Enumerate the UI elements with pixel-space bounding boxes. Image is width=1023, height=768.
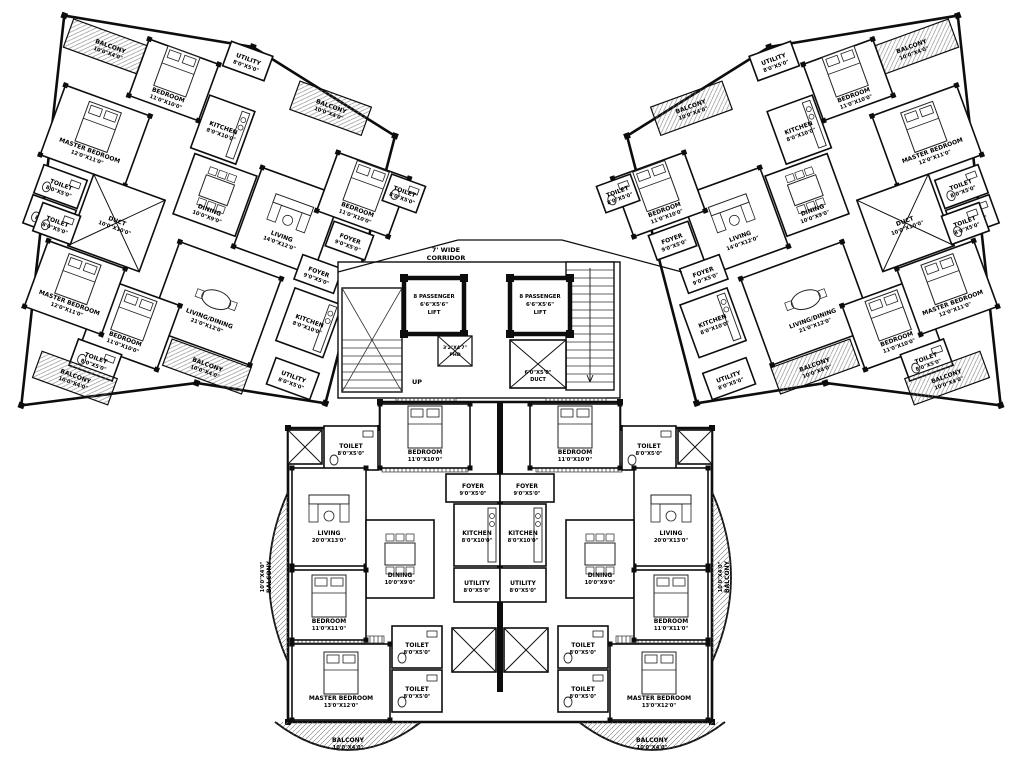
room-label: 8'0"X5'0" xyxy=(337,451,364,457)
room-label: UTILITY xyxy=(464,580,490,587)
room-label: 6'6"X5'6" xyxy=(526,302,554,308)
room-room xyxy=(678,430,712,464)
sofa-icon xyxy=(682,504,691,522)
room-bedroom: BEDROOM11'0"X10'0" xyxy=(528,402,623,471)
sofa-icon xyxy=(309,504,318,522)
room-kitchen: KITCHEN8'0"X10'0" xyxy=(500,504,546,566)
room-bedroom: BEDROOM11'0"X10'0" xyxy=(378,402,473,471)
column-block xyxy=(632,466,637,471)
column-block xyxy=(290,466,295,471)
column-block xyxy=(506,274,514,282)
room-label: 11'0"X11'0" xyxy=(312,626,347,632)
room-label: 10'0"X4'0" xyxy=(718,561,724,592)
room-label: 11'0"X10'0" xyxy=(558,457,593,463)
room-label: 13'0"X12'0" xyxy=(642,703,677,709)
bed-icon xyxy=(408,406,442,448)
bottom-wing: TOILET8'0"X5'0"BEDROOM11'0"X10'0"FOYER9'… xyxy=(260,399,731,751)
floor-plan-page: BALCONY10'0"X4'0"MASTER BEDROOM12'0"X11'… xyxy=(0,0,1023,768)
room-utility: UTILITY8'0"X5'0" xyxy=(454,568,500,602)
room-label: DINING xyxy=(388,572,412,579)
room-dining: DINING10'0"X9'0" xyxy=(366,520,434,598)
room-label: TOILET xyxy=(339,443,363,450)
room-label: 8'0"X5'0" xyxy=(569,694,596,700)
stair-up-label: UP xyxy=(412,378,422,386)
room-label: FOYER xyxy=(516,483,538,490)
column-block xyxy=(290,718,295,723)
sofa-icon xyxy=(340,504,349,522)
room-label: BALCONY xyxy=(266,560,273,593)
lift-shaft: 8 PASSENGER6'6"X5'6"LIFT xyxy=(400,274,468,338)
room-label: FOYER xyxy=(462,483,484,490)
room-living: LIVING20'0"X13'0" xyxy=(632,466,711,569)
room-label: 13'0"X12'0" xyxy=(324,703,359,709)
room-label: 8'0"X5'0" xyxy=(569,650,596,656)
room-balcony: BALCONY10'0"X4'0" xyxy=(718,560,731,593)
room-label: TOILET xyxy=(405,642,429,649)
room-label: 10'0"X4'0" xyxy=(260,561,266,592)
corridor-label-line1: 7' WIDE xyxy=(432,246,460,254)
room-label: 10'0"X9'0" xyxy=(385,580,416,586)
room-label: LIVING xyxy=(318,530,341,537)
room-label: 11'0"X11'0" xyxy=(654,626,689,632)
column-block xyxy=(290,568,295,573)
column-block xyxy=(706,568,711,573)
room-label: TOILET xyxy=(571,686,595,693)
room-label: MASTER BEDROOM xyxy=(309,695,373,702)
column-block xyxy=(364,466,369,471)
room-label: 6'6"X5'6" xyxy=(420,302,448,308)
room-label: 10'0"X4'0" xyxy=(637,745,668,751)
room-label: 8'0"X5'0" xyxy=(635,451,662,457)
column-block xyxy=(528,466,533,471)
room-label: LIFT xyxy=(428,310,441,316)
column-block xyxy=(364,568,369,573)
room-label: 6'0"X5'0" xyxy=(524,370,551,376)
column-block xyxy=(566,330,574,338)
room-label: 20'0"X13'0" xyxy=(312,538,347,544)
bed-icon xyxy=(642,652,676,694)
core-duct: 6'0"X5'0"DUCT xyxy=(510,340,566,388)
room-label: BEDROOM xyxy=(558,449,592,456)
room-label: 8'0"X10'0" xyxy=(508,538,539,544)
room-label: BALCONY xyxy=(332,737,365,744)
column-block xyxy=(468,402,473,407)
bed-icon xyxy=(558,406,592,448)
room-label: BALCONY xyxy=(636,737,669,744)
room-label: TOILET xyxy=(637,443,661,450)
room-label: 8'0"X5'0" xyxy=(509,588,536,594)
room-label: 3'2"X4'7" xyxy=(443,345,467,351)
column-block xyxy=(566,274,574,282)
room-label: UTILITY xyxy=(510,580,536,587)
column-block xyxy=(388,718,393,723)
column-block xyxy=(290,642,295,647)
room-label: 8'0"X5'0" xyxy=(403,650,430,656)
room-label: 9'0"X5'0" xyxy=(513,491,540,497)
floor-plan-svg: BALCONY10'0"X4'0"MASTER BEDROOM12'0"X11'… xyxy=(0,0,1023,768)
room-label: 8 PASSENGER xyxy=(413,294,455,300)
room-label: TOILET xyxy=(571,642,595,649)
room-room xyxy=(288,430,322,464)
column-block xyxy=(468,466,473,471)
column-block xyxy=(608,718,613,723)
room-toilet: TOILET8'0"X5'0" xyxy=(392,670,442,712)
room-bedroom: BEDROOM11'0"X11'0" xyxy=(290,568,369,643)
room-label: 11'0"X10'0" xyxy=(408,457,443,463)
room-label: 10'0"X9'0" xyxy=(585,580,616,586)
room-living: LIVING20'0"X13'0" xyxy=(290,466,369,569)
room-utility: UTILITY8'0"X5'0" xyxy=(500,568,546,602)
room-label: BALCONY xyxy=(724,560,731,593)
column-block xyxy=(632,568,637,573)
room-label: 8'0"X5'0" xyxy=(403,694,430,700)
room-toilet: TOILET8'0"X5'0" xyxy=(558,670,608,712)
lift-shaft: 8 PASSENGER6'6"X5'6"LIFT xyxy=(506,274,574,338)
bed-icon xyxy=(312,575,346,617)
plumbing-duct: 3'2"X4'7"PHD xyxy=(438,336,472,366)
room-label: 9'0"X5'0" xyxy=(459,491,486,497)
column-block xyxy=(400,330,408,338)
room-label: 8'0"X5'0" xyxy=(463,588,490,594)
room-dining: DINING10'0"X9'0" xyxy=(566,520,634,598)
column-block xyxy=(378,402,383,407)
column-block xyxy=(528,402,533,407)
room-toilet: TOILET8'0"X5'0" xyxy=(558,626,608,668)
room-master-bedroom: MASTER BEDROOM13'0"X12'0" xyxy=(608,642,711,723)
bed-icon xyxy=(654,575,688,617)
room-room xyxy=(504,628,548,672)
room-kitchen: KITCHEN8'0"X10'0" xyxy=(454,504,500,566)
column-block xyxy=(400,274,408,282)
dining-table-icon xyxy=(385,543,415,565)
room-label: 8'0"X10'0" xyxy=(462,538,493,544)
room-label: TOILET xyxy=(405,686,429,693)
room-label: DINING xyxy=(588,572,612,579)
column-block xyxy=(618,402,623,407)
column-block xyxy=(706,642,711,647)
room-master-bedroom: MASTER BEDROOM13'0"X12'0" xyxy=(290,642,393,723)
room-label: BEDROOM xyxy=(654,618,688,625)
column-block xyxy=(632,638,637,643)
bed-icon xyxy=(324,652,358,694)
sofa-icon xyxy=(651,504,660,522)
room-label: 10'0"X4'0" xyxy=(333,745,364,751)
room-label: LIVING xyxy=(660,530,683,537)
sofa-icon xyxy=(651,495,691,504)
room-label: 20'0"X13'0" xyxy=(654,538,689,544)
room-bedroom: BEDROOM11'0"X11'0" xyxy=(632,568,711,643)
dining-table-icon xyxy=(585,543,615,565)
room-label: PHD xyxy=(449,352,460,358)
central-core: 8 PASSENGER6'6"X5'6"LIFT8 PASSENGER6'6"X… xyxy=(338,240,682,410)
room-foyer: FOYER9'0"X5'0" xyxy=(500,474,554,502)
column-block xyxy=(506,330,514,338)
room-outline xyxy=(634,468,708,566)
room-label: DUCT xyxy=(530,377,546,383)
sofa-icon xyxy=(309,495,349,504)
room-outline xyxy=(292,468,366,566)
room-room xyxy=(452,628,496,672)
room-toilet: TOILET8'0"X5'0" xyxy=(392,626,442,668)
room-label: LIFT xyxy=(534,310,547,316)
column-block xyxy=(378,466,383,471)
column-block xyxy=(706,718,711,723)
column-block xyxy=(618,466,623,471)
room-label: MASTER BEDROOM xyxy=(627,695,691,702)
room-label: KITCHEN xyxy=(462,530,492,537)
column-block xyxy=(706,466,711,471)
room-label: KITCHEN xyxy=(508,530,538,537)
room-label: BEDROOM xyxy=(312,618,346,625)
column-block xyxy=(460,274,468,282)
room-label: BEDROOM xyxy=(408,449,442,456)
room-balcony: BALCONY10'0"X4'0" xyxy=(260,560,273,593)
room-toilet: TOILET8'0"X5'0" xyxy=(622,426,676,470)
room-foyer: FOYER9'0"X5'0" xyxy=(446,474,500,502)
corridor-label-line2: CORRIDOR xyxy=(427,254,466,262)
column-block xyxy=(364,638,369,643)
room-toilet: TOILET8'0"X5'0" xyxy=(324,426,378,470)
room-label: 8 PASSENGER xyxy=(519,294,561,300)
